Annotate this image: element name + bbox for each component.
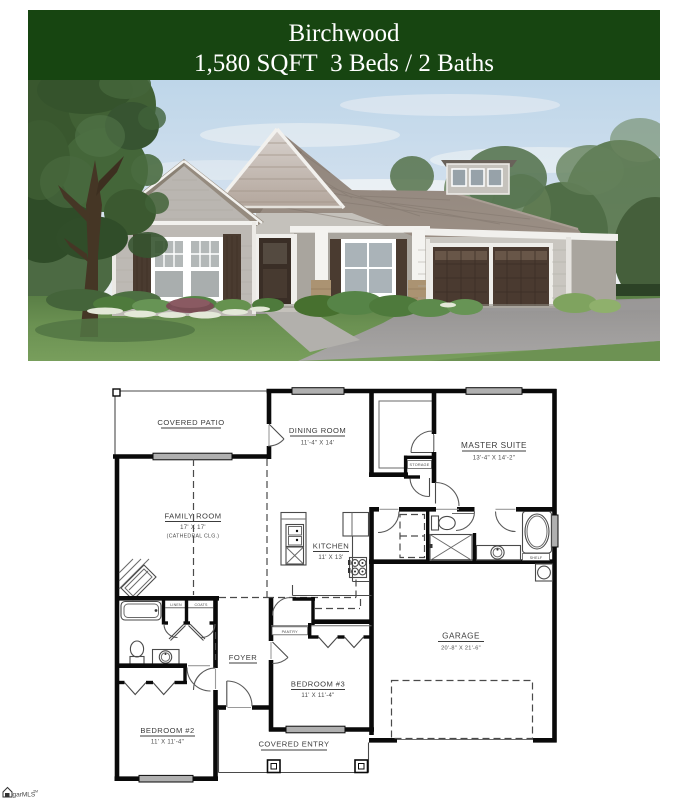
svg-text:COATS: COATS <box>194 603 208 607</box>
svg-text:LINEN: LINEN <box>170 603 182 607</box>
svg-text:COVERED PATIO: COVERED PATIO <box>157 418 224 427</box>
svg-text:11' X 13': 11' X 13' <box>318 555 343 561</box>
svg-text:BEDROOM #2: BEDROOM #2 <box>140 726 194 735</box>
svg-text:20'-8" X 21'-6": 20'-8" X 21'-6" <box>441 646 481 652</box>
svg-text:DINING ROOM: DINING ROOM <box>289 426 346 435</box>
svg-text:GARAGE: GARAGE <box>442 632 480 641</box>
svg-text:PANTRY: PANTRY <box>282 630 299 634</box>
svg-text:BEDROOM #3: BEDROOM #3 <box>291 680 345 689</box>
svg-text:COVERED ENTRY: COVERED ENTRY <box>258 740 329 749</box>
svg-text:KITCHEN: KITCHEN <box>313 542 349 551</box>
svg-text:TM: TM <box>33 790 38 794</box>
svg-text:FOYER: FOYER <box>229 653 257 662</box>
svg-text:11' X 11'-4": 11' X 11'-4" <box>151 740 184 746</box>
svg-text:11'-4" X 14': 11'-4" X 14' <box>301 441 335 447</box>
svg-text:SHELF: SHELF <box>530 556 543 560</box>
svg-text:STORAGE: STORAGE <box>410 463 430 467</box>
svg-text:13'-4" X 14'-2": 13'-4" X 14'-2" <box>473 456 515 462</box>
svg-text:MASTER SUITE: MASTER SUITE <box>461 441 527 450</box>
svg-text:11' X 11'-4": 11' X 11'-4" <box>301 693 334 699</box>
